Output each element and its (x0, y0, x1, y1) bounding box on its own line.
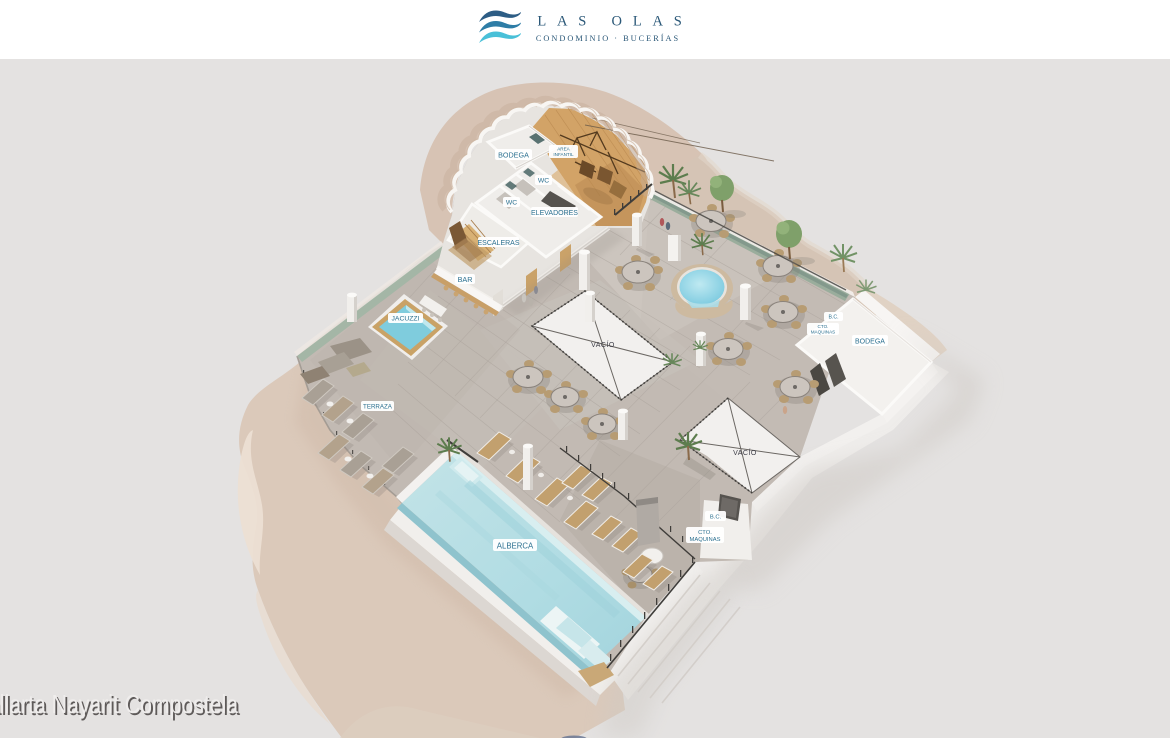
svg-text:WC: WC (538, 178, 549, 185)
svg-text:JACUZZI: JACUZZI (392, 316, 420, 323)
svg-text:LAS OLAS: LAS OLAS (537, 14, 692, 30)
svg-text:AREA: AREA (557, 147, 570, 152)
svg-text:BODEGA: BODEGA (498, 151, 529, 160)
svg-text:BAR: BAR (458, 275, 473, 284)
svg-text:WC: WC (506, 200, 517, 207)
svg-text:allarta Nayarit Compostela: allarta Nayarit Compostela (0, 689, 238, 719)
svg-text:B.C.: B.C. (828, 315, 838, 321)
svg-text:ESCALERAS: ESCALERAS (477, 240, 519, 247)
svg-text:ELEVADORES: ELEVADORES (531, 210, 578, 217)
svg-text:CTO.: CTO. (818, 324, 829, 329)
svg-text:VACÍO: VACÍO (733, 448, 757, 457)
svg-text:MAQUINAS: MAQUINAS (811, 330, 836, 335)
svg-text:B.C.: B.C. (710, 515, 722, 521)
svg-text:CONDOMINIO · BUCERÍAS: CONDOMINIO · BUCERÍAS (536, 33, 680, 43)
svg-text:ALBERCA: ALBERCA (497, 542, 534, 551)
svg-text:VACÍO: VACÍO (591, 340, 615, 349)
svg-text:TERRAZA: TERRAZA (363, 404, 393, 411)
svg-text:CTO.: CTO. (698, 530, 712, 536)
svg-text:MAQUINAS: MAQUINAS (690, 537, 721, 543)
svg-text:INFANTIL: INFANTIL (553, 152, 574, 157)
svg-text:BODEGA: BODEGA (855, 339, 885, 346)
